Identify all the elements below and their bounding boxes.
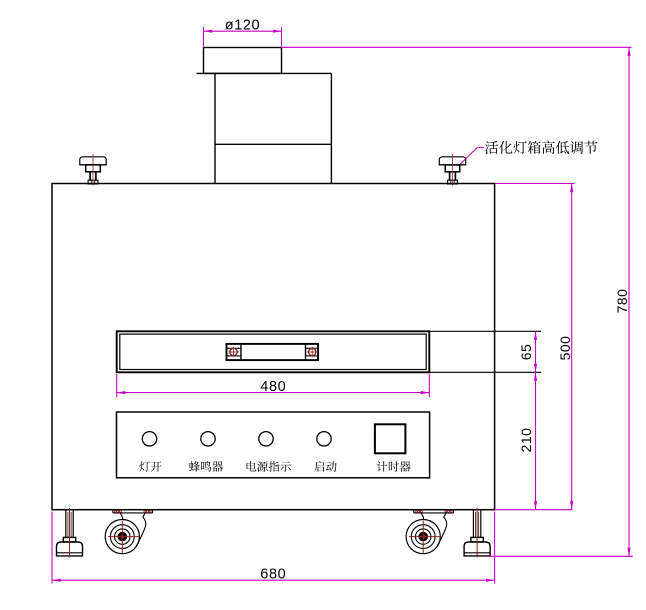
svg-text:680: 680 — [260, 566, 286, 582]
svg-text:ø120: ø120 — [225, 17, 260, 33]
svg-text:210: 210 — [518, 428, 534, 453]
svg-text:780: 780 — [614, 289, 630, 314]
svg-text:65: 65 — [518, 344, 534, 361]
svg-text:480: 480 — [260, 379, 286, 395]
svg-text:500: 500 — [557, 336, 573, 361]
